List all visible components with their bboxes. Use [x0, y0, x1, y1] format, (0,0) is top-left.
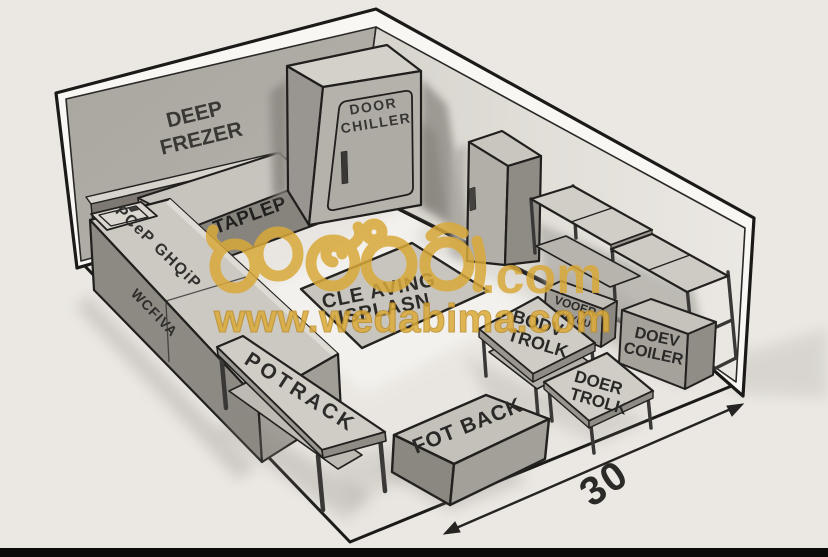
svg-text:www.wedabima.com: www.wedabima.com: [213, 297, 612, 341]
